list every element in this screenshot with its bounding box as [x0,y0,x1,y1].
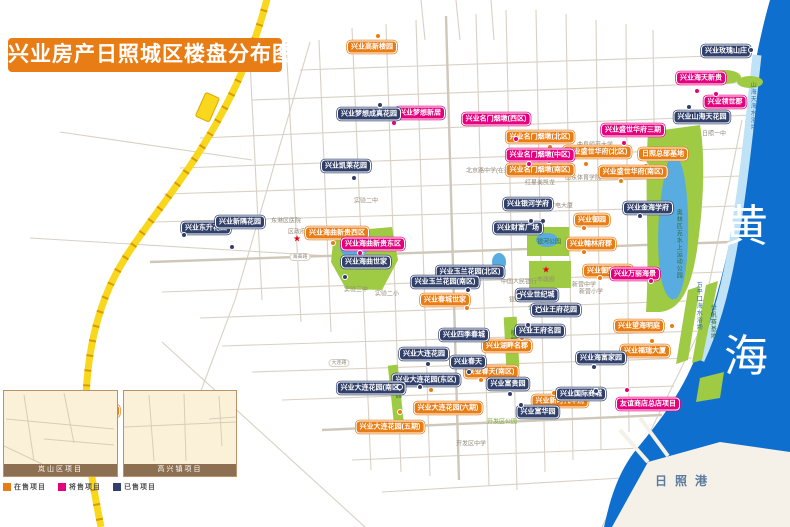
sea-name-char-1: 黄 [724,190,768,254]
port-label: 日照港 [655,472,715,489]
inset-title: 高兴镇项目 [124,464,236,476]
legend-item-onsale: 在售项目 [3,482,46,492]
legend-label: 将售项目 [69,482,101,492]
inset-roads [124,391,236,464]
page-title: 兴业房产日照城区楼盘分布图 [8,38,282,72]
legend-label: 已售项目 [124,482,156,492]
inset-gaoxing: 高兴镇项目 [123,390,237,477]
legend-item-presale: 将售项目 [58,482,101,492]
onsale-swatch [3,483,11,491]
legend: 在售项目 将售项目 已售项目 [3,482,156,492]
sold-swatch [113,483,121,491]
sea-name-char-2: 海 [724,320,768,384]
inset-lanshan: 岚山区项目 [3,390,118,477]
presale-swatch [58,483,66,491]
inset-roads [4,391,117,464]
base-map [0,0,790,527]
city-map: 海曲公园银河公园奥林匹克水上运动公园世帆赛基地万平口海水浴场山海天海水浴场植物园… [0,0,790,527]
legend-label: 在售项目 [14,482,46,492]
inset-title: 岚山区项目 [4,464,117,476]
legend-item-sold: 已售项目 [113,482,156,492]
